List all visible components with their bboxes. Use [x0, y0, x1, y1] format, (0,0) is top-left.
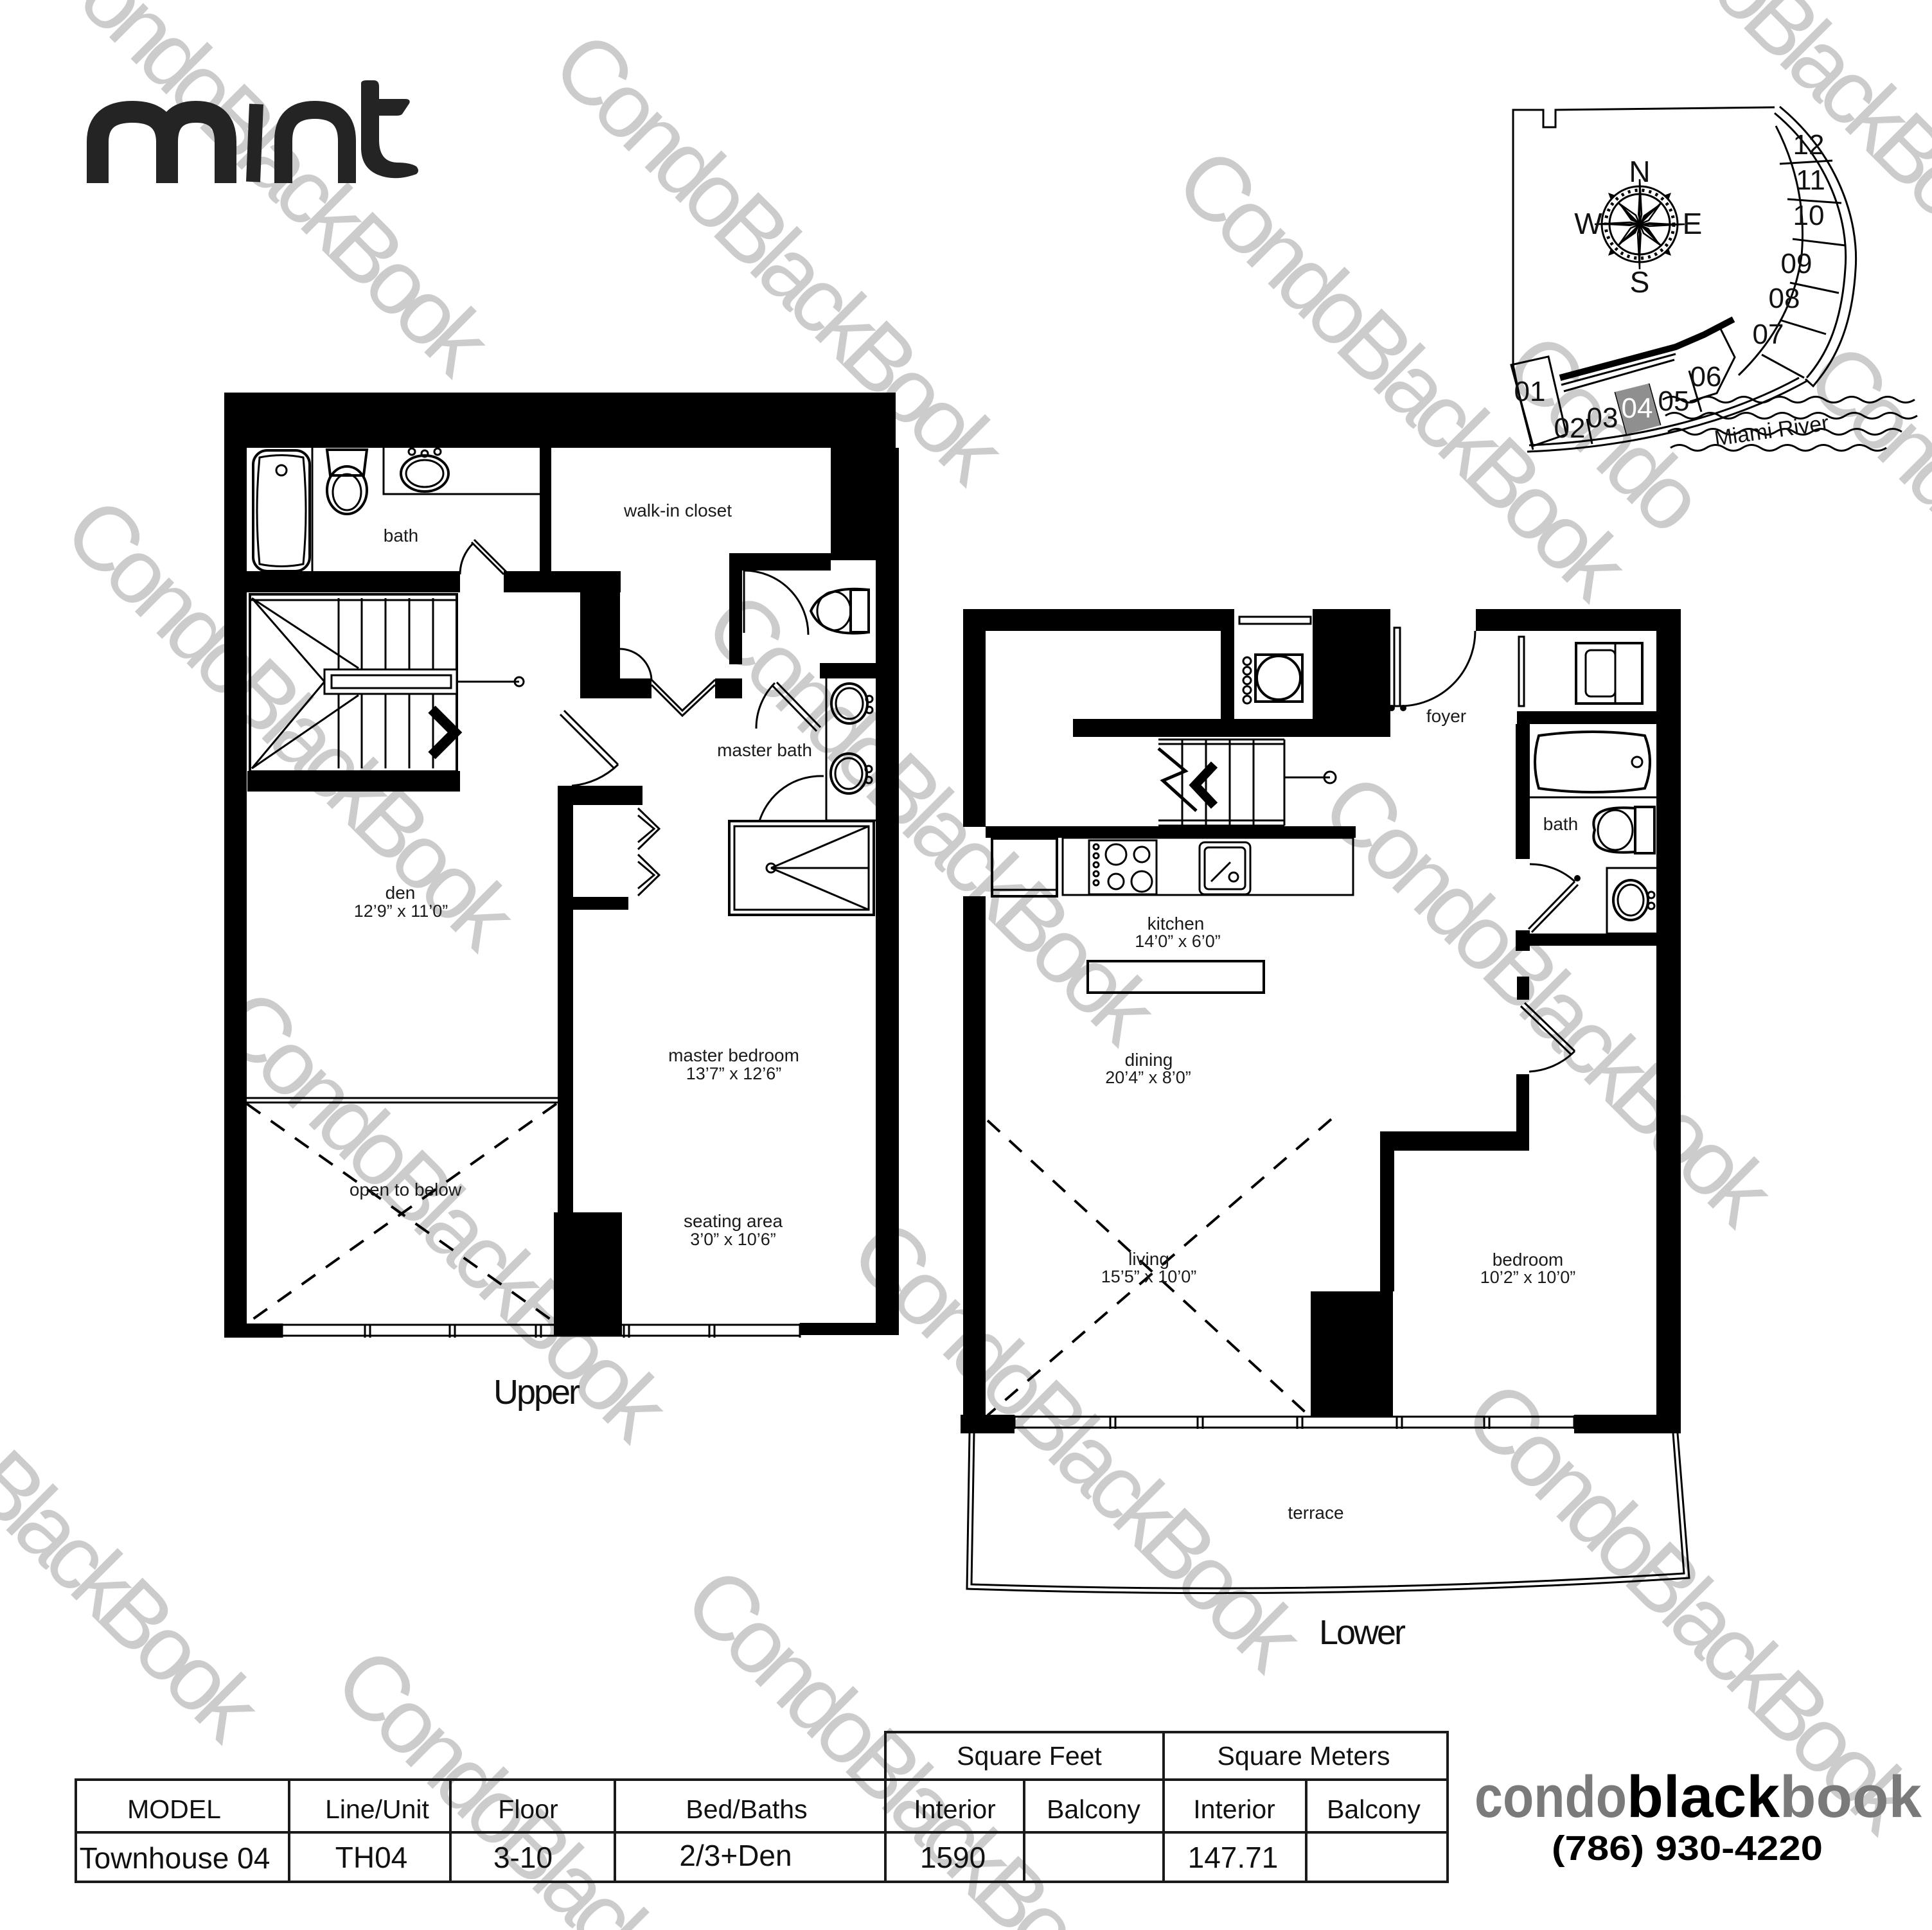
svg-text:03: 03: [1587, 402, 1618, 434]
svg-text:Interior: Interior: [1193, 1794, 1275, 1824]
svg-text:N: N: [1629, 155, 1650, 188]
svg-text:1590: 1590: [920, 1841, 986, 1874]
svg-text:open to below: open to below: [350, 1180, 462, 1200]
svg-text:2/3+Den: 2/3+Den: [679, 1839, 792, 1872]
svg-text:dining: dining: [1125, 1050, 1173, 1070]
svg-text:living: living: [1128, 1249, 1169, 1269]
svg-text:15’5” x 10’0”: 15’5” x 10’0”: [1101, 1267, 1197, 1286]
svg-text:foyer: foyer: [1426, 706, 1466, 726]
svg-text:11: 11: [1796, 164, 1825, 196]
svg-text:Square Meters: Square Meters: [1218, 1741, 1390, 1771]
svg-text:S: S: [1630, 265, 1650, 299]
svg-text:09: 09: [1781, 248, 1812, 279]
svg-text:terrace: terrace: [1288, 1503, 1343, 1523]
svg-text:Balcony: Balcony: [1327, 1794, 1421, 1824]
svg-text:13’7” x 12’6”: 13’7” x 12’6”: [686, 1064, 782, 1083]
svg-text:book: book: [1780, 1764, 1922, 1830]
svg-text:bath: bath: [384, 526, 419, 545]
svg-text:Lower: Lower: [1319, 1613, 1406, 1652]
svg-text:20’4” x 8’0”: 20’4” x 8’0”: [1105, 1068, 1191, 1087]
svg-text:04: 04: [1622, 393, 1653, 424]
svg-text:condo: condo: [1475, 1764, 1627, 1830]
svg-text:den: den: [386, 883, 416, 903]
svg-text:walk-in closet: walk-in closet: [623, 500, 732, 520]
svg-text:06: 06: [1690, 361, 1722, 393]
svg-text:W: W: [1574, 207, 1602, 240]
svg-text:Balcony: Balcony: [1047, 1794, 1140, 1824]
svg-text:bath: bath: [1543, 814, 1579, 834]
svg-text:12’9” x 11’0”: 12’9” x 11’0”: [354, 901, 448, 921]
svg-text:seating area: seating area: [684, 1211, 783, 1231]
svg-text:master bath: master bath: [717, 740, 812, 760]
svg-text:bedroom: bedroom: [1493, 1250, 1564, 1270]
svg-text:147.71: 147.71: [1188, 1841, 1279, 1874]
svg-text:10’2” x 10’0”: 10’2” x 10’0”: [1480, 1268, 1576, 1287]
svg-text:08: 08: [1769, 283, 1800, 314]
svg-text:master bedroom: master bedroom: [668, 1045, 799, 1065]
svg-text:Floor: Floor: [498, 1794, 558, 1824]
svg-text:Square Feet: Square Feet: [957, 1741, 1102, 1771]
svg-text:3-10: 3-10: [493, 1841, 553, 1874]
svg-text:black: black: [1627, 1764, 1780, 1830]
svg-text:(786) 930-4220: (786) 930-4220: [1552, 1829, 1823, 1868]
svg-text:12: 12: [1793, 129, 1825, 161]
svg-text:kitchen: kitchen: [1148, 914, 1205, 934]
svg-text:Interior: Interior: [914, 1794, 996, 1824]
svg-text:Bed/Baths: Bed/Baths: [686, 1794, 807, 1824]
svg-text:14’0” x 6’0”: 14’0” x 6’0”: [1135, 932, 1221, 951]
svg-text:Line/Unit: Line/Unit: [325, 1794, 429, 1824]
svg-text:02: 02: [1554, 412, 1586, 444]
svg-text:10: 10: [1793, 200, 1825, 231]
svg-text:TH04: TH04: [335, 1841, 407, 1874]
svg-text:Upper: Upper: [493, 1373, 580, 1412]
svg-text:Townhouse 04: Townhouse 04: [80, 1841, 270, 1875]
svg-text:E: E: [1683, 207, 1703, 240]
svg-text:01: 01: [1514, 376, 1546, 407]
svg-text:3’0” x 10’6”: 3’0” x 10’6”: [690, 1230, 776, 1249]
svg-text:07: 07: [1753, 319, 1784, 350]
svg-text:MODEL: MODEL: [127, 1794, 221, 1824]
